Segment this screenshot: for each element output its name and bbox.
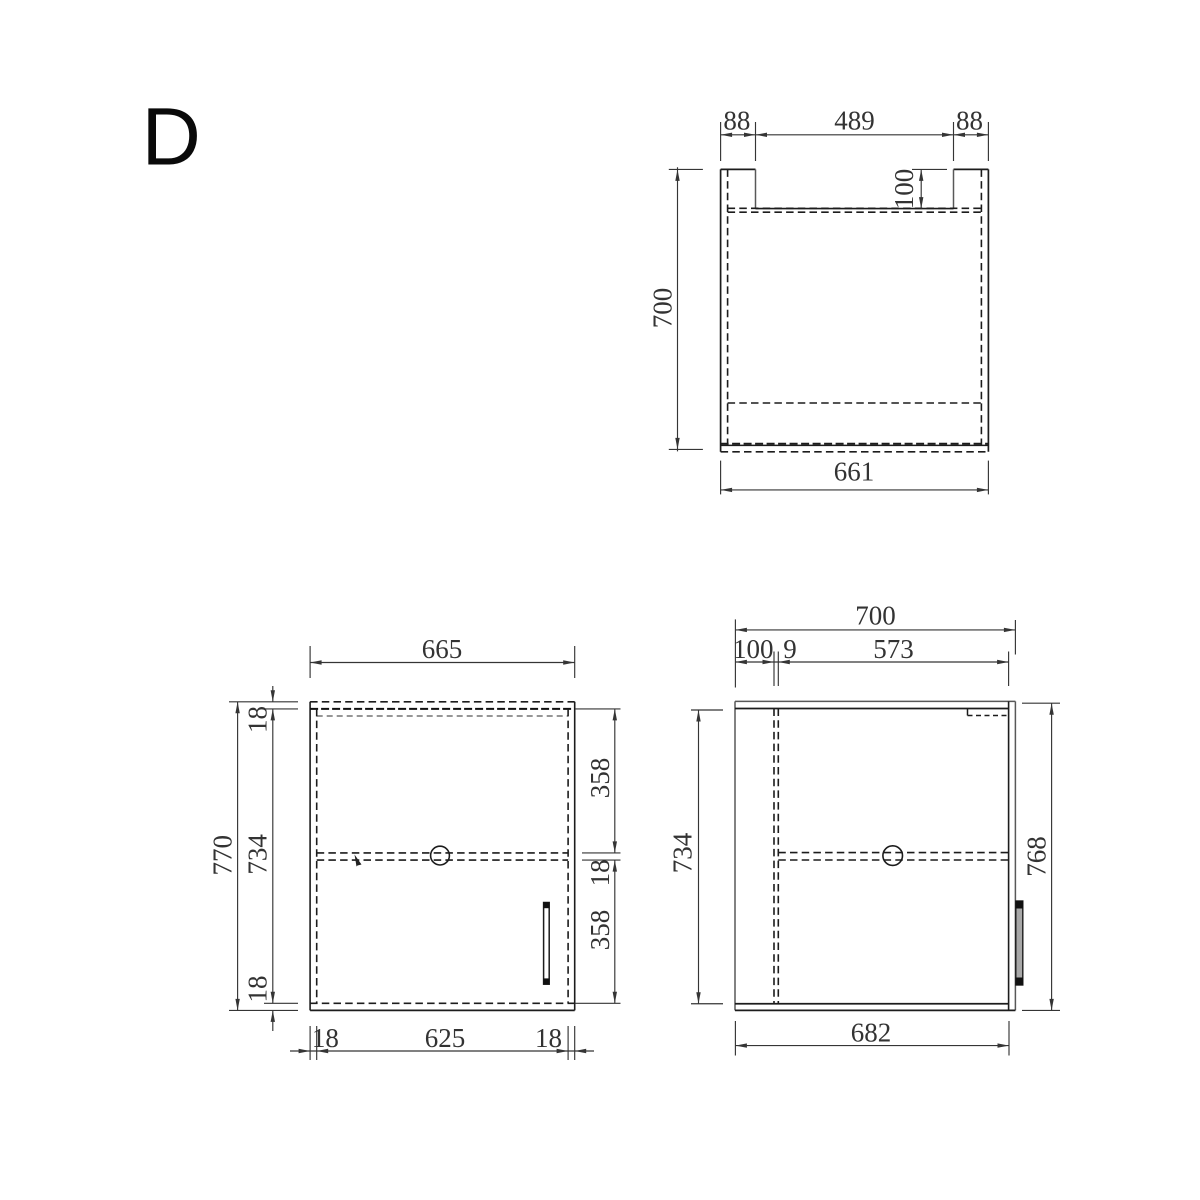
svg-text:18: 18 [312,1023,339,1053]
svg-text:88: 88 [956,106,983,136]
svg-text:573: 573 [873,634,914,664]
svg-text:734: 734 [668,832,698,873]
svg-text:358: 358 [585,910,615,951]
svg-text:18: 18 [243,976,273,1003]
svg-text:100: 100 [733,634,774,664]
svg-text:358: 358 [585,758,615,799]
svg-text:9: 9 [783,634,797,664]
svg-text:768: 768 [1021,836,1051,877]
svg-text:489: 489 [834,106,875,136]
svg-text:682: 682 [851,1018,892,1048]
svg-text:700: 700 [648,288,678,329]
svg-text:88: 88 [723,106,750,136]
svg-text:100: 100 [889,169,919,210]
svg-text:770: 770 [208,835,238,876]
svg-text:700: 700 [855,600,896,630]
svg-text:D: D [142,91,201,182]
svg-text:661: 661 [834,457,875,487]
svg-text:18: 18 [585,859,615,886]
svg-text:18: 18 [243,706,273,733]
svg-text:625: 625 [425,1023,466,1053]
svg-text:665: 665 [422,634,463,664]
svg-text:734: 734 [242,834,272,875]
svg-text:18: 18 [535,1023,562,1053]
